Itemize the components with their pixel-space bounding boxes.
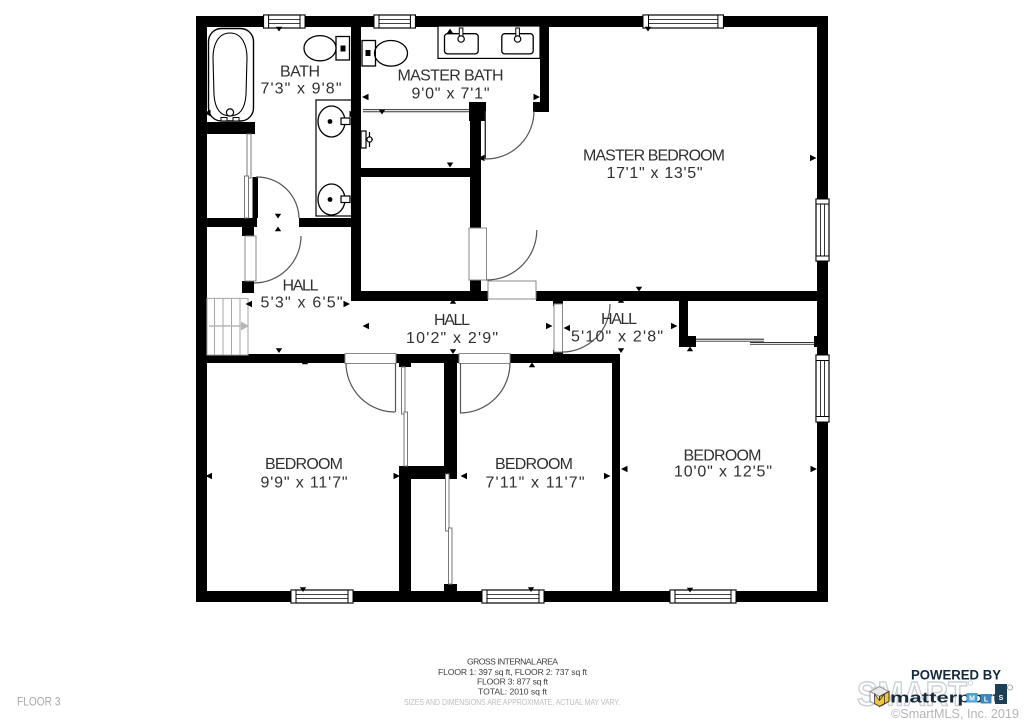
svg-text:BEDROOM: BEDROOM bbox=[265, 456, 343, 473]
svg-text:9'0" x 7'1": 9'0" x 7'1" bbox=[412, 86, 490, 103]
svg-text:©SmartMLS, Inc. 2019: ©SmartMLS, Inc. 2019 bbox=[891, 706, 1019, 721]
svg-text:10'0" x 12'5": 10'0" x 12'5" bbox=[674, 464, 772, 481]
svg-text:FLOOR 3: 877 sq ft: FLOOR 3: 877 sq ft bbox=[477, 677, 549, 687]
svg-text:MASTER BATH: MASTER BATH bbox=[398, 68, 504, 85]
svg-text:FLOOR 3: FLOOR 3 bbox=[17, 695, 61, 709]
svg-text:TOTAL: 2010 sq ft: TOTAL: 2010 sq ft bbox=[478, 687, 548, 697]
svg-text:MASTER BEDROOM: MASTER BEDROOM bbox=[583, 148, 725, 165]
svg-text:BEDROOM: BEDROOM bbox=[495, 456, 573, 473]
svg-text:M: M bbox=[969, 696, 975, 703]
svg-text:BATH: BATH bbox=[280, 64, 320, 81]
svg-text:SIZES AND DIMENSIONS ARE APPRO: SIZES AND DIMENSIONS ARE APPROXIMATE, AC… bbox=[404, 698, 620, 707]
svg-text:9'9" x 11'7": 9'9" x 11'7" bbox=[261, 475, 348, 492]
svg-text:BEDROOM: BEDROOM bbox=[684, 448, 762, 465]
svg-text:17'1" x 13'5": 17'1" x 13'5" bbox=[607, 165, 703, 182]
svg-text:POWERED BY: POWERED BY bbox=[911, 668, 1001, 683]
svg-text:L: L bbox=[984, 697, 989, 704]
svg-text:HALL: HALL bbox=[283, 278, 319, 295]
svg-text:HALL: HALL bbox=[434, 312, 470, 329]
svg-text:FLOOR 1: 397 sq ft, FLOOR 2: 7: FLOOR 1: 397 sq ft, FLOOR 2: 737 sq ft bbox=[438, 667, 588, 677]
svg-text:GROSS INTERNAL AREA: GROSS INTERNAL AREA bbox=[467, 657, 558, 667]
svg-text:HALL: HALL bbox=[601, 311, 637, 328]
svg-text:7'3" x 9'8": 7'3" x 9'8" bbox=[261, 81, 342, 98]
svg-text:S: S bbox=[999, 695, 1004, 702]
svg-text:5'3" x 6'5": 5'3" x 6'5" bbox=[261, 295, 343, 312]
svg-text:7'11" x 11'7": 7'11" x 11'7" bbox=[486, 475, 585, 492]
